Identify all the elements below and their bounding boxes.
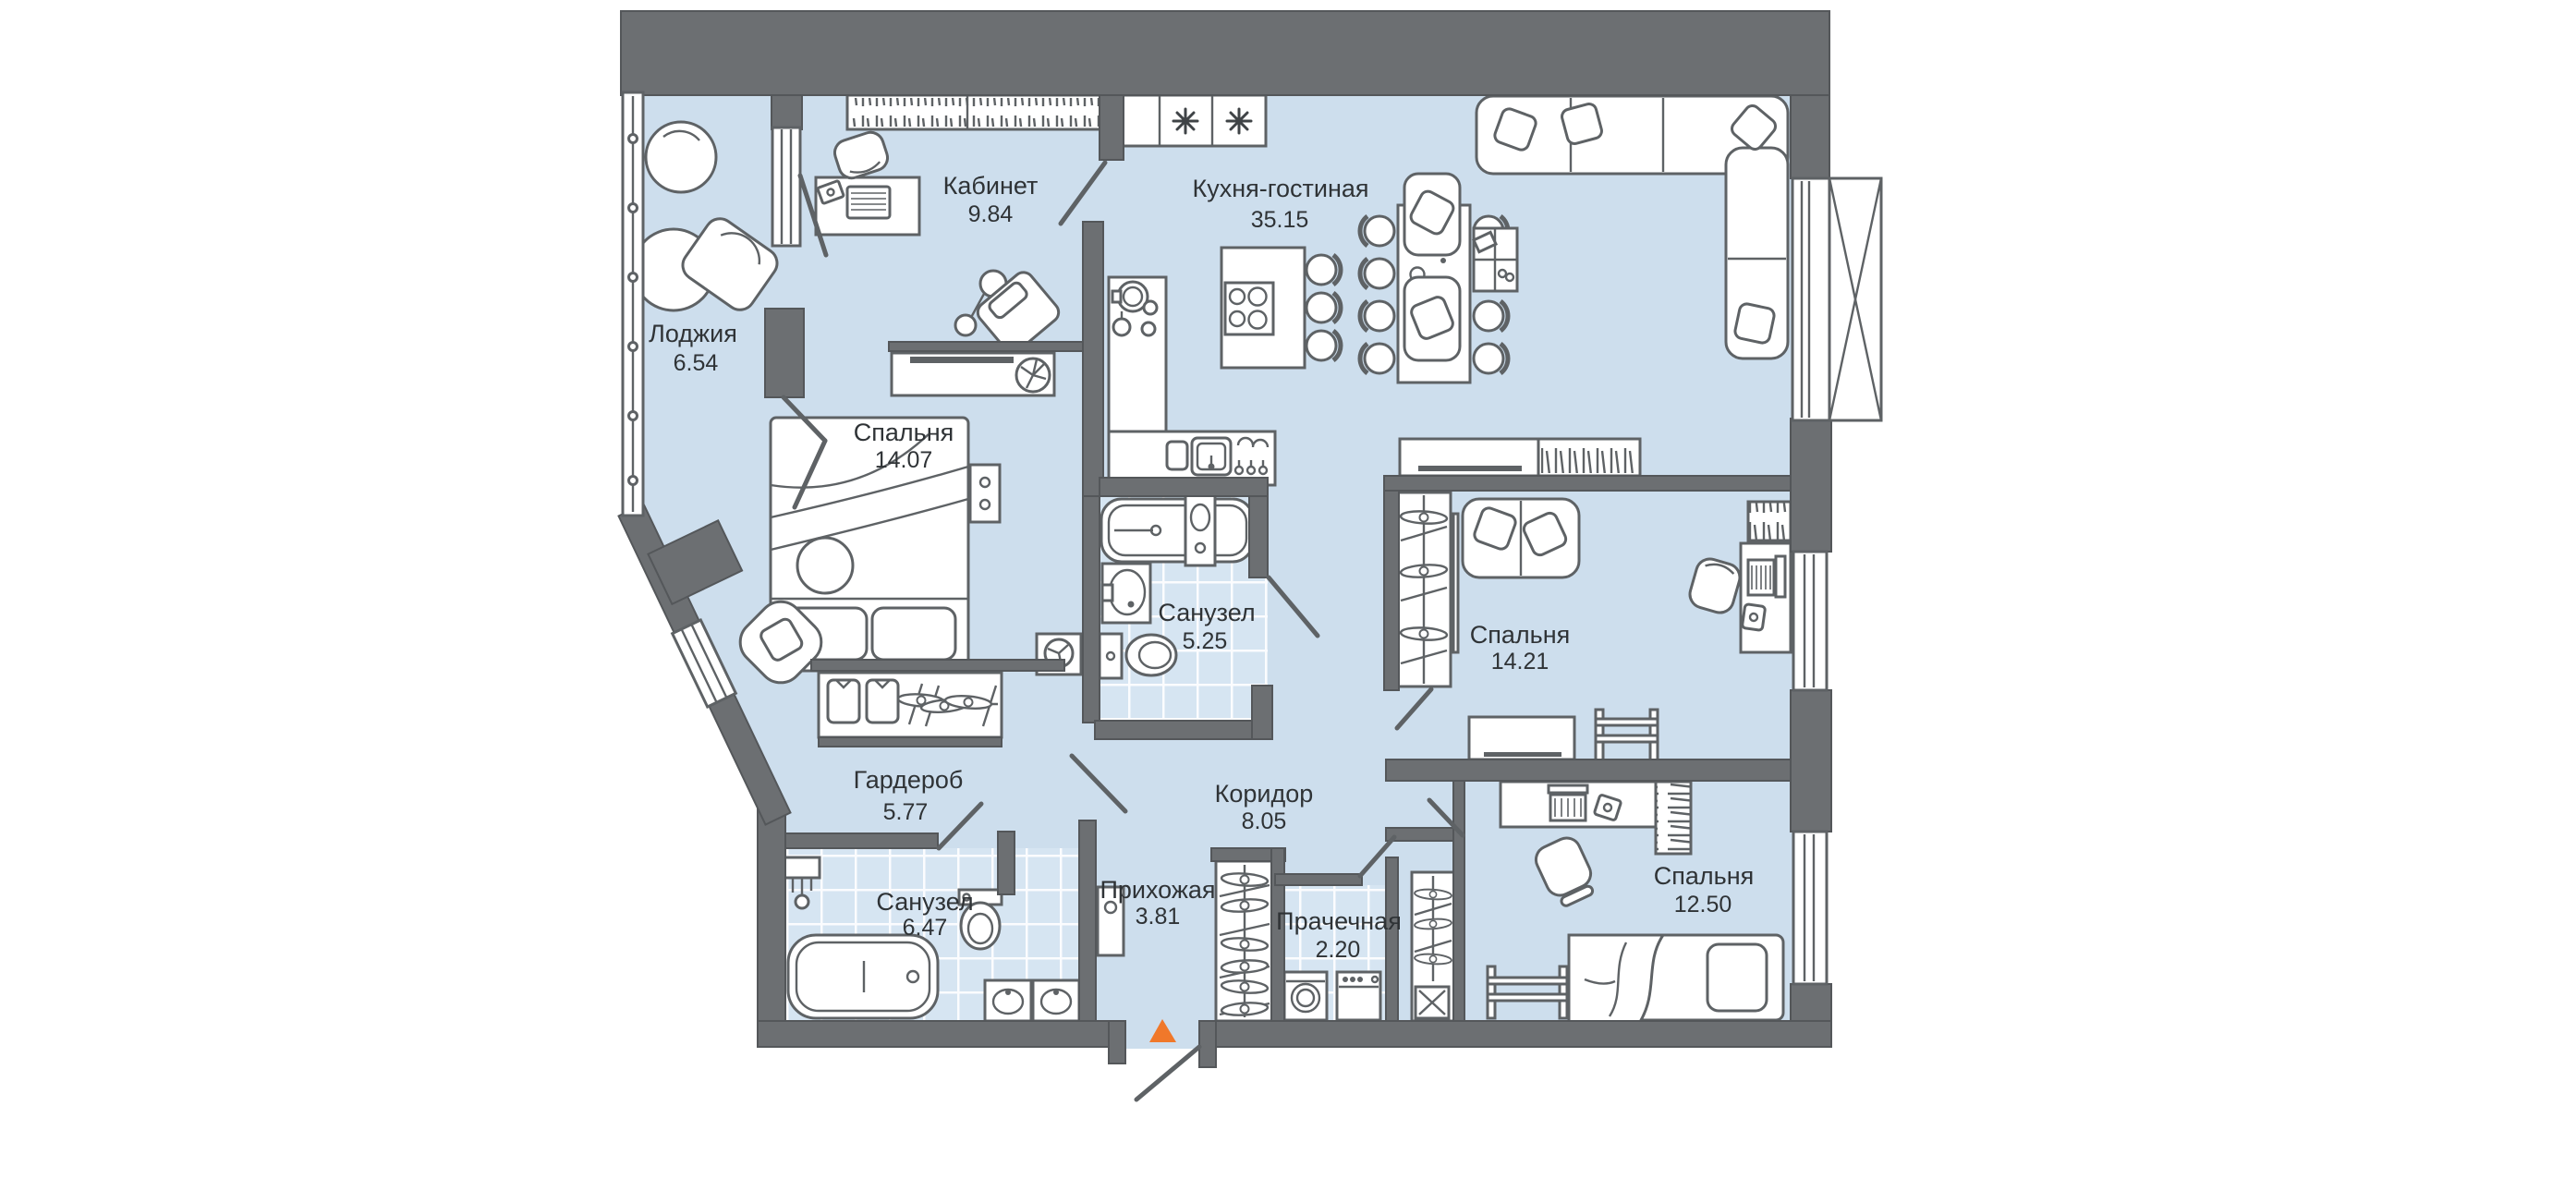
room-area-laundry: 2.20 (1316, 937, 1361, 963)
room-area-office: 9.84 (968, 201, 1014, 227)
wall-office-kitchen (1100, 95, 1124, 160)
wall-bedroom-middle (1384, 476, 1399, 690)
dresser-icon (1469, 717, 1574, 759)
bedroom-middle-window (1793, 552, 1827, 690)
room-area-bedroom-child: 12.50 (1674, 892, 1732, 917)
laptop-icon (1549, 785, 1587, 793)
armchair-icon (1404, 277, 1460, 360)
hall-wardrobe-icon (1216, 861, 1273, 1021)
cutting-board-icon (1167, 442, 1187, 469)
bar-stool-icon (1306, 293, 1341, 322)
laptop-icon (1776, 556, 1785, 597)
wall-bathroom-small (1252, 686, 1272, 739)
bookshelf-icon (1656, 782, 1691, 854)
fridge-icon (1173, 109, 1197, 133)
kitchen-sink-icon (1192, 438, 1231, 475)
dining-chair-icon (1360, 259, 1394, 288)
washing-machine-icon (1284, 972, 1327, 1020)
dining-chair-icon (1474, 344, 1508, 373)
wall-loggia (765, 309, 804, 397)
dining-chair-icon (1360, 344, 1394, 373)
wall-bathroom-main (785, 833, 938, 848)
armchair-icon (1404, 174, 1460, 255)
room-label-corridor: Коридор (1215, 780, 1314, 808)
door-entry (1136, 1047, 1199, 1100)
room-label-loggia: Лоджия (649, 320, 737, 347)
room-label-laundry: Прачечная (1276, 907, 1402, 935)
wall-wardrobe-hallway (998, 832, 1015, 894)
sofa-icon (1463, 499, 1579, 577)
room-area-wardrobe-room: 5.77 (883, 799, 929, 825)
wardrobe-icon (1397, 492, 1458, 687)
single-bed-icon (1569, 935, 1783, 1022)
bathtub-icon (788, 935, 938, 1018)
wall-bottom (758, 1021, 1125, 1047)
room-label-bedroom-child: Спальня (1654, 862, 1755, 890)
wall-bathroom-small (1095, 721, 1272, 739)
side-table-icon (797, 538, 853, 593)
wall-closet (811, 660, 1064, 671)
desk-icon (1501, 782, 1658, 827)
loggia-office-window (772, 128, 800, 246)
wall-office-divider (889, 342, 1100, 351)
bathtub-icon (1101, 495, 1253, 565)
room-label-office: Кабинет (943, 172, 1039, 200)
tv-icon (1418, 466, 1522, 471)
nightstand-icon (970, 465, 1000, 522)
wall-left (758, 806, 785, 1021)
wall-bedroom-master (1083, 222, 1103, 496)
closet-icon (819, 673, 1002, 737)
bar-stool-icon (1306, 331, 1341, 360)
room-area-bedroom-master: 14.07 (875, 447, 933, 473)
pillow-icon (872, 608, 955, 660)
room-label-kitchen-living: Кухня-гостиная (1192, 175, 1368, 202)
dining-chair-icon (1360, 301, 1394, 331)
pillow-icon (1707, 944, 1767, 1011)
toilet-icon (1100, 634, 1176, 678)
wall-laundry (1386, 857, 1398, 1021)
dining-chair-icon (1474, 301, 1508, 331)
floor-plan-canvas: Лоджия 6.54 Кабинет 9.84 Кухня-гостиная … (0, 0, 2576, 1203)
wall-bathroom-small (1100, 478, 1268, 496)
wall-laundry (1275, 874, 1362, 885)
bookshelf-icon (1748, 502, 1791, 541)
room-area-bathroom-main: 6.47 (903, 915, 948, 941)
plant-icon (1016, 358, 1050, 392)
washbasin-icon (1033, 980, 1079, 1021)
room-area-hallway: 3.81 (1136, 904, 1181, 930)
room-area-bathroom-small: 5.25 (1183, 628, 1228, 654)
wall-entry-step (1199, 1021, 1216, 1067)
wall-closet (819, 737, 1002, 747)
room-label-bathroom-small: Санузел (1158, 599, 1255, 626)
kitchen-bay-window (1792, 178, 1881, 420)
bar-stool-icon (1306, 255, 1341, 285)
washbasin-icon (1102, 564, 1150, 623)
room-label-hallway: Прихожая (1100, 876, 1215, 904)
wall-loggia (772, 95, 802, 129)
wall-bathroom-main (1079, 820, 1096, 1021)
wall-bedroom-child (1386, 759, 1791, 781)
wall-entry-step (1109, 1021, 1125, 1063)
wall-right (1791, 419, 1831, 552)
room-area-corridor: 8.05 (1242, 808, 1287, 834)
floor-plan-page: Лоджия 6.54 Кабинет 9.84 Кухня-гостиная … (0, 0, 2576, 1203)
room-label-wardrobe-room: Гардероб (854, 766, 964, 794)
tv-icon (910, 357, 1014, 363)
room-label-bathroom-main: Санузел (876, 888, 973, 916)
room-area-bedroom-middle: 14.21 (1491, 649, 1549, 674)
wall-bedroom-middle (1384, 476, 1791, 491)
wall-right (1791, 690, 1831, 832)
dryer-icon (1337, 972, 1380, 1020)
mousepad-icon (1742, 604, 1765, 631)
wall-corridor-niche (1386, 828, 1463, 841)
wall-bottom (1199, 1021, 1831, 1047)
laptop-icon (847, 187, 890, 218)
corridor-wardrobe-icon (1412, 872, 1454, 1021)
room-label-bedroom-middle: Спальня (1470, 621, 1571, 649)
bedroom-child-window (1793, 832, 1827, 984)
wall-bathroom-small (1083, 496, 1100, 723)
kitchen-island-icon (1221, 248, 1305, 368)
freezer-icon (1227, 109, 1251, 133)
desk-icon (1741, 543, 1791, 652)
dining-chair-icon (1360, 216, 1394, 246)
room-area-kitchen-living: 35.15 (1251, 207, 1309, 233)
coffee-table-icon (1474, 228, 1517, 291)
wall-top-right-corner (1791, 95, 1829, 178)
wall-bedroom-child (1453, 781, 1464, 1021)
room-label-bedroom-master: Спальня (854, 419, 954, 446)
washbasin-icon (985, 980, 1031, 1021)
wall-top (621, 11, 1829, 95)
room-area-loggia: 6.54 (674, 350, 719, 376)
round-chair-icon (646, 122, 716, 192)
wall-bathroom-small (1249, 496, 1268, 577)
loggia-glazing (623, 92, 643, 516)
